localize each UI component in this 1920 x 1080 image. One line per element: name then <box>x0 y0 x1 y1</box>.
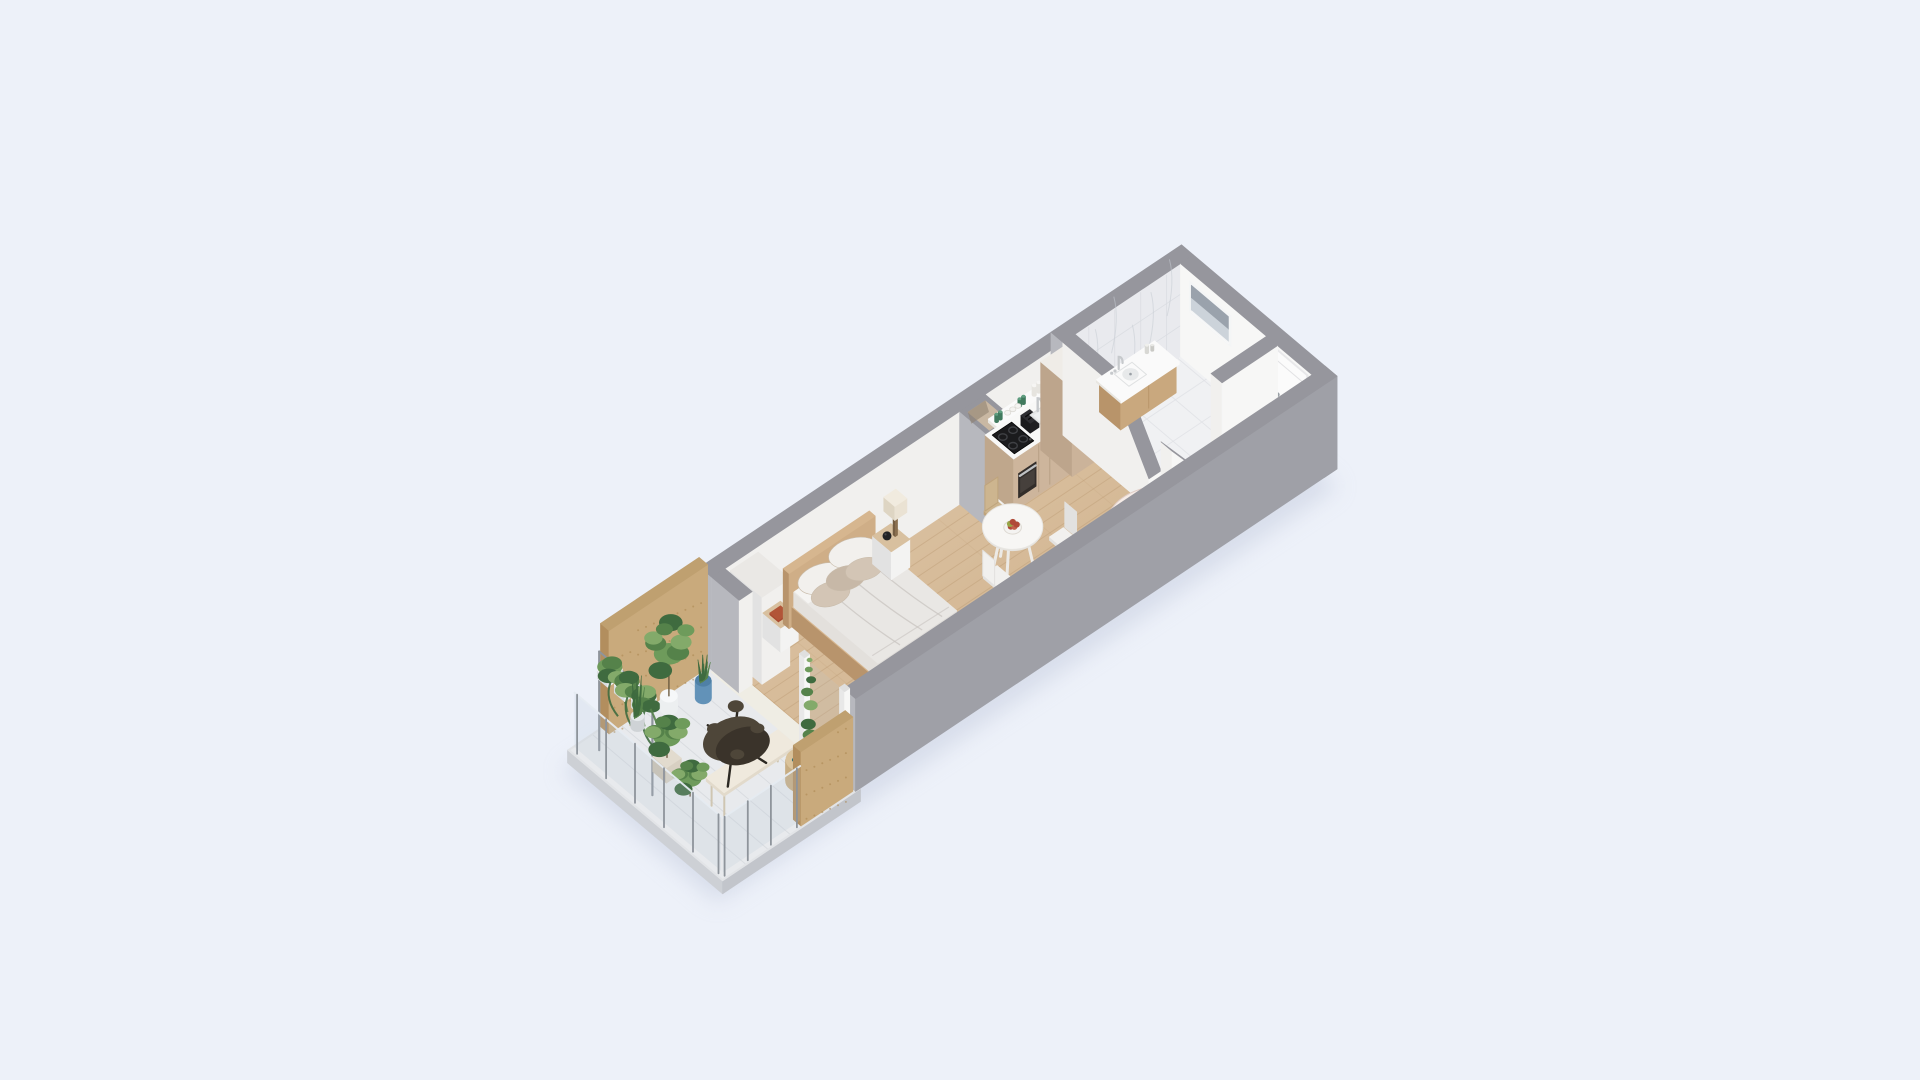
floorplan-canvas <box>0 0 1920 1080</box>
left-wall-stub <box>712 569 752 694</box>
isometric-floorplan-svg <box>0 0 1920 1080</box>
vase-sphere <box>883 531 892 540</box>
